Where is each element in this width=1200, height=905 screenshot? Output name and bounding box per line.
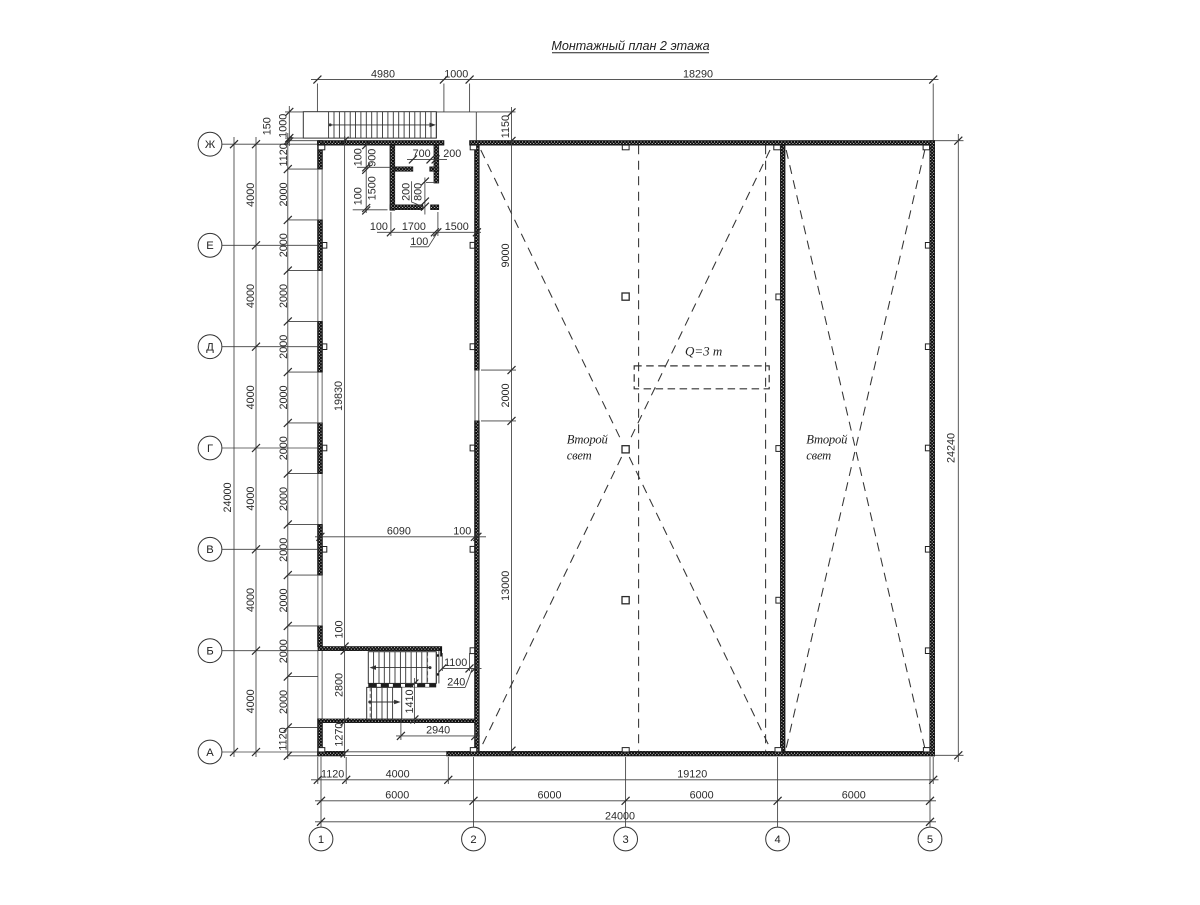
svg-text:1120: 1120 [277, 727, 289, 750]
svg-text:24240: 24240 [946, 433, 958, 463]
svg-text:24000: 24000 [222, 482, 234, 512]
svg-text:700: 700 [413, 148, 431, 160]
svg-text:А: А [206, 747, 214, 759]
svg-text:Второй: Второй [567, 432, 609, 446]
svg-text:6000: 6000 [537, 789, 561, 801]
svg-text:1120: 1120 [278, 143, 290, 166]
svg-text:1150: 1150 [500, 115, 512, 138]
svg-text:2000: 2000 [278, 538, 290, 562]
svg-text:19830: 19830 [333, 381, 345, 411]
svg-text:6090: 6090 [387, 526, 411, 538]
svg-text:свет: свет [567, 449, 592, 463]
svg-text:5: 5 [927, 834, 933, 846]
svg-text:2000: 2000 [278, 639, 290, 663]
svg-text:1: 1 [318, 834, 324, 846]
svg-text:100: 100 [353, 187, 365, 205]
svg-text:1700: 1700 [402, 221, 426, 233]
svg-text:2000: 2000 [278, 588, 290, 612]
svg-text:свет: свет [806, 449, 831, 463]
svg-text:6000: 6000 [842, 789, 866, 801]
svg-text:Д: Д [206, 342, 214, 354]
svg-text:200: 200 [443, 148, 461, 160]
svg-text:Б: Б [206, 646, 213, 658]
svg-text:2000: 2000 [278, 182, 290, 206]
svg-text:2: 2 [470, 834, 476, 846]
svg-text:4000: 4000 [245, 689, 257, 713]
svg-text:4980: 4980 [371, 68, 395, 80]
svg-text:1410: 1410 [404, 689, 416, 713]
svg-text:18290: 18290 [683, 68, 713, 80]
svg-text:2940: 2940 [426, 725, 450, 737]
svg-text:100: 100 [333, 620, 345, 638]
svg-text:4: 4 [774, 834, 780, 846]
svg-text:4000: 4000 [386, 768, 410, 780]
svg-text:100: 100 [370, 221, 388, 233]
svg-text:Ж: Ж [205, 139, 216, 151]
svg-text:Q=3 т: Q=3 т [685, 344, 722, 359]
svg-text:Монтажный план 2 этажа: Монтажный план 2 этажа [551, 39, 709, 53]
svg-text:1000: 1000 [444, 68, 468, 80]
svg-text:2000: 2000 [278, 335, 290, 359]
svg-text:900: 900 [367, 149, 379, 167]
svg-text:150: 150 [262, 117, 274, 135]
svg-text:13000: 13000 [500, 571, 512, 601]
svg-text:Е: Е [206, 240, 213, 252]
svg-text:1100: 1100 [444, 657, 467, 669]
svg-text:В: В [206, 544, 213, 556]
svg-text:2000: 2000 [278, 233, 290, 257]
svg-text:1120: 1120 [321, 768, 344, 780]
svg-text:4000: 4000 [245, 284, 257, 308]
svg-text:1500: 1500 [367, 176, 379, 200]
svg-text:4000: 4000 [245, 183, 257, 207]
svg-text:Г: Г [207, 443, 213, 455]
svg-text:4000: 4000 [245, 385, 257, 409]
svg-text:2800: 2800 [333, 673, 345, 697]
svg-text:6000: 6000 [385, 789, 409, 801]
svg-text:2000: 2000 [278, 690, 290, 714]
svg-text:24000: 24000 [605, 811, 635, 823]
svg-text:19120: 19120 [677, 768, 707, 780]
svg-text:Второй: Второй [806, 432, 848, 446]
svg-text:800: 800 [412, 183, 424, 201]
svg-text:2000: 2000 [500, 383, 512, 407]
svg-text:4000: 4000 [245, 588, 257, 612]
svg-text:3: 3 [622, 834, 628, 846]
svg-text:9000: 9000 [500, 243, 512, 267]
svg-text:240: 240 [447, 676, 465, 688]
svg-text:100: 100 [453, 526, 471, 538]
svg-text:2000: 2000 [278, 487, 290, 511]
svg-text:100: 100 [353, 148, 365, 166]
svg-text:200: 200 [400, 183, 412, 201]
svg-text:1500: 1500 [445, 221, 469, 233]
svg-text:4000: 4000 [245, 487, 257, 511]
svg-text:6000: 6000 [690, 789, 714, 801]
svg-text:2000: 2000 [278, 436, 290, 460]
svg-text:2000: 2000 [278, 284, 290, 308]
svg-text:2000: 2000 [278, 385, 290, 409]
svg-text:1000: 1000 [277, 114, 289, 138]
svg-text:1270: 1270 [333, 723, 345, 747]
